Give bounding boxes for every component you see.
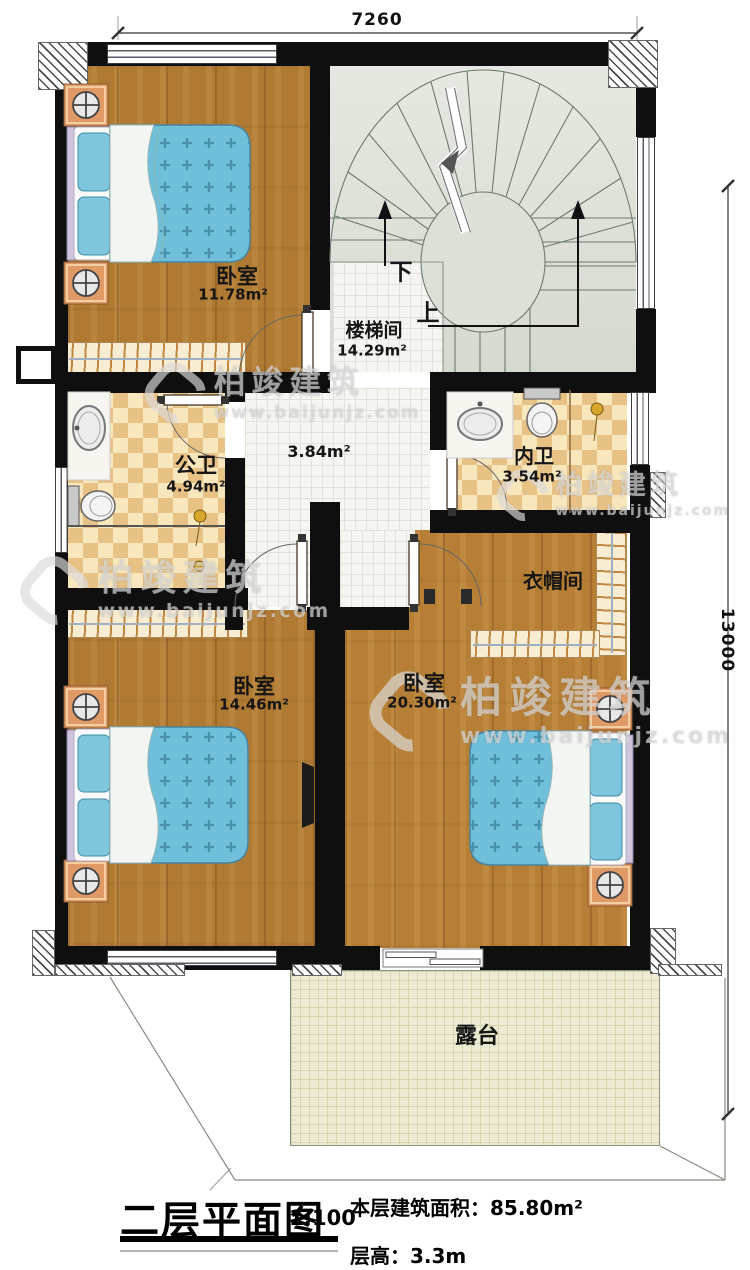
wall <box>315 607 345 948</box>
stair-up-label: 上 <box>417 303 440 326</box>
floor-area-text: 本层建筑面积：85.80m² <box>350 1192 583 1221</box>
floor-plan: 柏竣建筑 www.baijunjz.com 柏竣建筑 www.baijunjz.… <box>0 0 750 1270</box>
room-label-ensuite-bath: 内卫 <box>514 446 554 466</box>
floor-hallway-left <box>245 530 310 607</box>
room-label-cloakroom: 衣帽间 <box>523 571 583 591</box>
room-label-stairwell: 楼梯间 <box>345 322 402 341</box>
wall <box>480 946 650 970</box>
title-underline <box>120 1236 338 1242</box>
eave-hatch <box>38 42 88 90</box>
floor-height-text: 层高：3.3m <box>350 1240 466 1269</box>
room-label-terrace: 露台 <box>455 1026 499 1048</box>
wall <box>630 465 650 948</box>
wall <box>225 458 245 588</box>
room-label-bedroom-bl: 卧室 <box>233 677 275 698</box>
wall <box>310 42 330 310</box>
room-area-ensuite-bath: 3.54m² <box>502 470 561 485</box>
window <box>107 44 277 64</box>
wardrobe-icon <box>66 608 248 638</box>
room-area-stairwell: 14.29m² <box>337 344 407 359</box>
wardrobe-icon <box>470 630 600 658</box>
wall <box>430 510 630 533</box>
eave-hatch <box>608 40 658 88</box>
title-underline-thin <box>120 1250 338 1252</box>
room-area-bedroom-tl: 11.78m² <box>198 288 268 303</box>
window <box>637 137 655 309</box>
terrace-deck <box>290 970 660 1146</box>
dimension-top-label: 7260 <box>351 10 402 30</box>
wall <box>430 388 447 450</box>
room-area-bedroom-bl: 14.46m² <box>219 698 289 713</box>
eave-hatch <box>55 964 185 976</box>
room-area-hallway: 3.84m² <box>287 444 350 460</box>
dimension-right-label: 13000 <box>717 608 737 672</box>
eave-hatch <box>658 964 722 976</box>
room-label-public-bath: 公卫 <box>175 456 217 477</box>
window <box>55 467 68 553</box>
window <box>631 392 649 465</box>
room-label-bedroom-br: 卧室 <box>403 674 445 695</box>
wall <box>58 372 330 393</box>
wall <box>430 372 656 393</box>
room-label-bedroom-tl: 卧室 <box>216 267 258 288</box>
wall <box>310 502 340 607</box>
floor-bedroom-bl <box>68 610 315 946</box>
room-area-public-bath: 4.94m² <box>166 480 225 495</box>
floor-bedroom-tl <box>68 66 310 372</box>
wall <box>58 588 248 610</box>
sliding-door-icon <box>383 949 483 967</box>
wardrobe-icon <box>66 342 246 374</box>
wall <box>636 309 656 392</box>
wardrobe-icon <box>596 530 626 656</box>
floor-hallway-right <box>340 530 415 607</box>
flue-box <box>16 346 56 384</box>
wall <box>225 388 245 402</box>
eave-hatch <box>32 930 55 976</box>
stair-down-label: 下 <box>390 262 413 285</box>
room-area-bedroom-br: 20.30m² <box>387 696 457 711</box>
drawing-scale: 1:100 <box>289 1206 356 1230</box>
wall <box>225 607 243 630</box>
eave-hatch <box>292 964 342 976</box>
eave-hatch <box>650 472 666 518</box>
